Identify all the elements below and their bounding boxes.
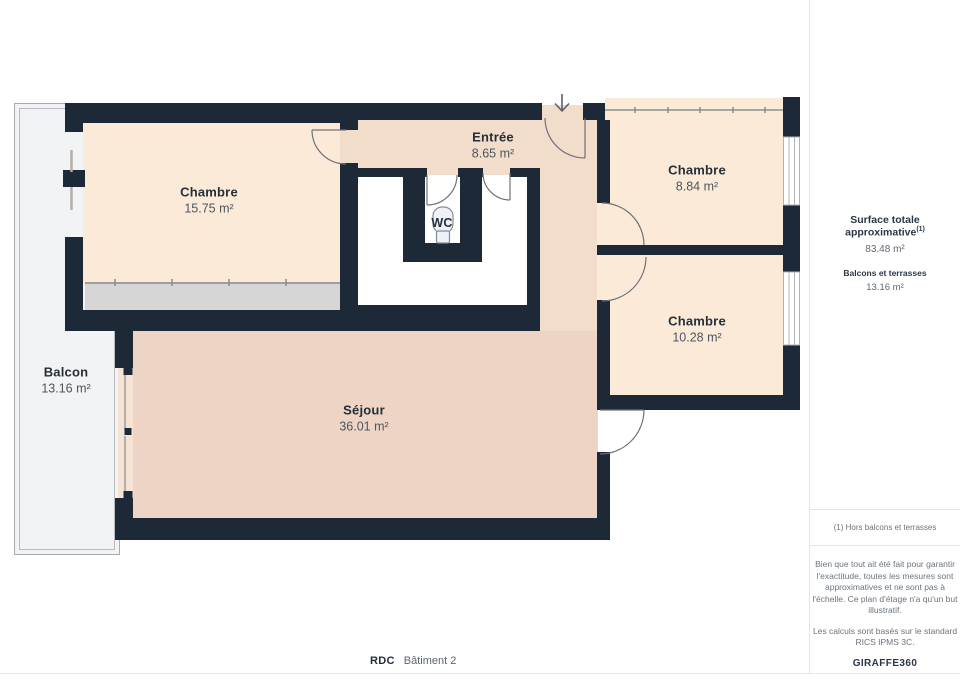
wall-right-mid xyxy=(783,205,800,272)
label-balcon: Balcon 13.16 m² xyxy=(41,365,90,396)
sidebar-surface-summary: Surface totale approximative(1) 83.48 m²… xyxy=(810,214,960,293)
wall-sejour-left-lower xyxy=(115,498,133,540)
wall-entrance-right xyxy=(583,103,605,120)
room-area: 8.84 m² xyxy=(668,180,726,194)
room-name: WC xyxy=(431,216,452,230)
door-arc-sejour xyxy=(600,410,644,454)
wall-storage-bottom xyxy=(340,305,540,331)
room-name: Balcon xyxy=(41,365,90,380)
disclaimer-text-1: Bien que tout ait été fait pour garantir… xyxy=(812,559,958,617)
wall-left-window-pier xyxy=(63,170,85,187)
surface-footnote-ref: (1) xyxy=(916,226,925,233)
wall-wc-bottom xyxy=(403,243,482,262)
surface-total-title: Surface totale approximative(1) xyxy=(810,214,960,239)
room-name: Chambre xyxy=(668,314,726,329)
giraffe360-logo: GIRAFFE360 xyxy=(812,658,958,670)
hallway xyxy=(540,168,598,333)
storage-room xyxy=(358,175,527,307)
wall-chambre3-bottom xyxy=(597,395,800,410)
window-chambre2 xyxy=(784,137,800,205)
room-name: Chambre xyxy=(180,185,238,200)
room-area: 36.01 m² xyxy=(339,420,388,434)
label-chambre-3: Chambre 10.28 m² xyxy=(668,314,726,345)
wall-storage-right xyxy=(527,168,540,307)
room-area: 8.65 m² xyxy=(472,147,514,161)
wall-right-top xyxy=(783,97,800,137)
sidebar-disclaimer: Bien que tout ait été fait pour garantir… xyxy=(812,559,958,669)
room-name: Séjour xyxy=(339,403,388,418)
wall-chambre1-right-pier xyxy=(340,103,358,130)
room-chambre-2-bay xyxy=(605,98,783,112)
disclaimer-text-2: Les calculs sont basés sur le standard R… xyxy=(812,626,958,649)
wall-hall-right-lower xyxy=(597,300,610,408)
page-bottom-divider xyxy=(0,673,960,674)
room-name: Chambre xyxy=(668,163,726,178)
label-chambre-2: Chambre 8.84 m² xyxy=(668,163,726,194)
wall-hall-right-upper xyxy=(597,120,610,203)
balcony-surface-title: Balcons et terrasses xyxy=(810,268,960,278)
wall-left-upper xyxy=(65,103,83,132)
wall-top-entree xyxy=(352,103,542,120)
wall-between-chambres xyxy=(597,245,800,255)
floor-label: RDC xyxy=(370,655,395,667)
sidebar-divider-1 xyxy=(810,509,960,510)
wall-sejour-bottom xyxy=(115,518,610,540)
room-area: 13.16 m² xyxy=(41,382,90,396)
sidebar-footnote: (1) Hors balcons et terrasses xyxy=(810,523,960,532)
label-entree: Entrée 8.65 m² xyxy=(472,130,514,161)
entrance-doorway xyxy=(542,105,583,120)
room-area: 10.28 m² xyxy=(668,331,726,345)
wall-sejour-right xyxy=(597,452,610,518)
building-label: Bâtiment 2 xyxy=(404,655,457,667)
chambre1-doorway xyxy=(340,126,360,166)
floor-plan-page: Chambre 15.75 m² Entrée 8.65 m² Chambre … xyxy=(0,0,960,679)
balcony-surface-value: 13.16 m² xyxy=(810,282,960,293)
footer-floor-info: RDC Bâtiment 2 xyxy=(370,655,456,667)
wall-sejour-left-upper xyxy=(115,331,133,368)
label-wc: WC xyxy=(431,216,452,230)
balcony-slider-strip xyxy=(118,368,133,498)
room-area: 15.75 m² xyxy=(180,202,238,216)
sidebar-divider-2 xyxy=(810,545,960,546)
room-name: Entrée xyxy=(472,130,514,145)
label-sejour: Séjour 36.01 m² xyxy=(339,403,388,434)
wall-top-chambre1 xyxy=(65,103,355,123)
wardrobe-strip xyxy=(85,282,343,312)
wall-below-wardrobe xyxy=(65,310,360,331)
window-chambre3 xyxy=(784,272,800,345)
surface-total-value: 83.48 m² xyxy=(810,244,960,255)
label-chambre-1: Chambre 15.75 m² xyxy=(180,185,238,216)
sidebar-divider-vertical xyxy=(809,0,810,673)
wall-chambre1-right xyxy=(340,163,358,310)
